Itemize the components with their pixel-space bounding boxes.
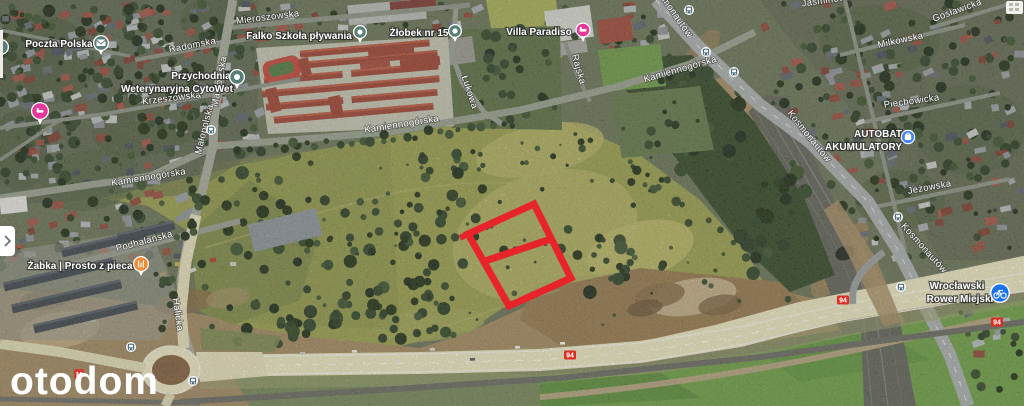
- svg-text:Villa Paradiso: Villa Paradiso: [506, 27, 571, 38]
- svg-text:AUTOBAT: AUTOBAT: [854, 129, 902, 140]
- svg-text:Wrocławski: Wrocławski: [930, 281, 985, 292]
- svg-text:Poczta Polska: Poczta Polska: [25, 39, 93, 50]
- svg-text:Weterynaryjna CytoWet: Weterynaryjna CytoWet: [121, 84, 234, 95]
- svg-text:otodom: otodom: [10, 360, 159, 403]
- svg-text:Rower Miejski: Rower Miejski: [927, 294, 994, 305]
- svg-text:94: 94: [566, 353, 574, 360]
- svg-text:Przychodnia: Przychodnia: [171, 71, 231, 82]
- svg-text:94: 94: [993, 320, 1001, 327]
- svg-text:Falko Szkoła pływania: Falko Szkoła pływania: [246, 31, 352, 42]
- svg-text:Żłobek nr 15: Żłobek nr 15: [390, 26, 449, 39]
- svg-text:94: 94: [839, 298, 847, 305]
- svg-text:Żabka | Prosto z pieca: Żabka | Prosto z pieca: [27, 259, 132, 272]
- svg-text:AKUMULATORY: AKUMULATORY: [825, 142, 902, 153]
